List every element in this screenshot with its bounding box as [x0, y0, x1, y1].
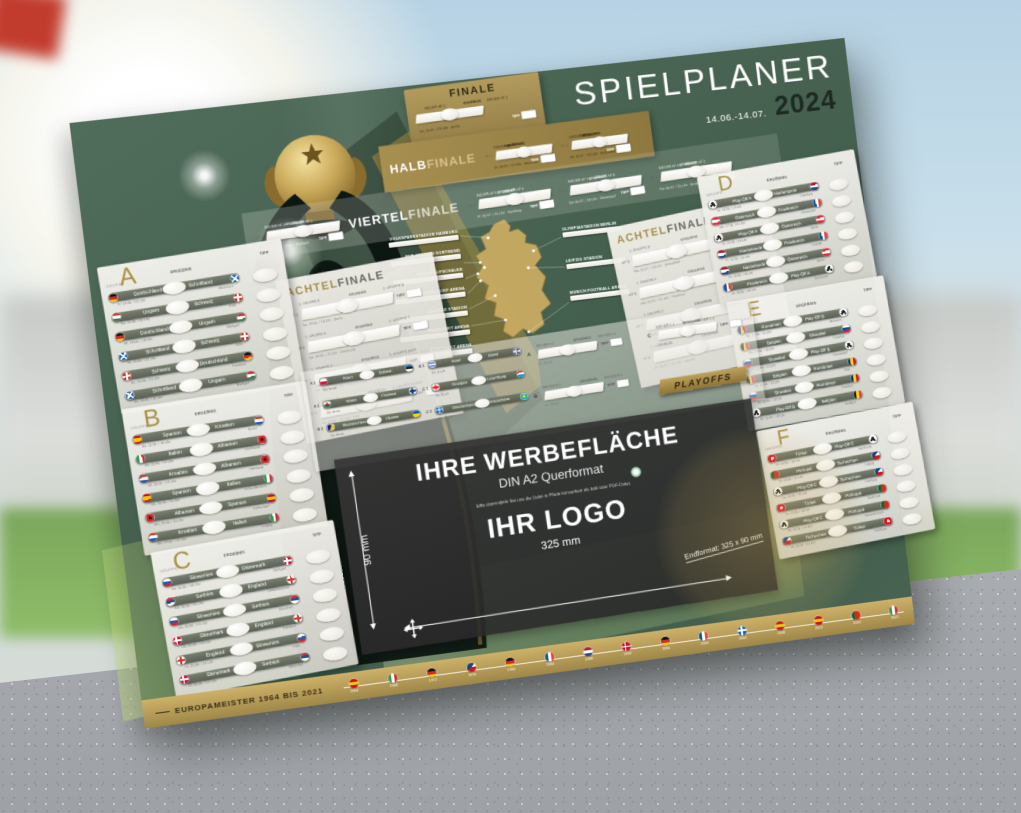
si-flag-icon	[169, 616, 179, 625]
tipp-oval	[322, 645, 348, 662]
tipp-label: TIPP	[396, 293, 405, 298]
tipp-field	[412, 320, 428, 331]
ch-flag-icon	[233, 293, 242, 302]
it-flag-icon	[270, 513, 279, 522]
title-light: FINALE	[426, 151, 477, 171]
tipp-wrap: TIPP	[511, 109, 536, 120]
de-flag-icon	[115, 332, 124, 341]
ch-flag-icon	[240, 332, 249, 341]
tipp-oval	[315, 606, 341, 623]
pt-flag-icon	[851, 610, 861, 620]
fi-flag-icon	[409, 387, 416, 394]
si-flag-icon	[162, 578, 172, 587]
al-flag-icon	[257, 435, 266, 444]
tipp-oval	[259, 306, 285, 323]
match-id: A 2	[313, 404, 319, 409]
champion-year: 2021	[891, 615, 899, 620]
de-flag-icon	[660, 636, 670, 646]
match-info: Di. 09.07. / 21 Uhr · München	[494, 159, 538, 169]
ergebnis-label: ERGEBNIS	[825, 427, 846, 436]
result-oval	[504, 192, 525, 207]
tipp-oval	[866, 353, 887, 367]
tipp-oval	[305, 548, 331, 565]
result-oval	[565, 384, 582, 397]
tipp-label: TIPP	[284, 392, 294, 398]
ge-flag-icon	[432, 383, 439, 390]
width-arrow	[407, 578, 729, 629]
hr-flag-icon	[148, 532, 157, 541]
dk-flag-icon	[283, 555, 292, 564]
group-card-C: GRUPPECERGEBNISTIPPSlowenienDänemarkSo. …	[150, 520, 358, 699]
lu-flag-icon	[517, 370, 524, 377]
tipp-oval	[890, 446, 911, 460]
match-id: HF 2	[560, 143, 569, 148]
nl-flag-icon	[583, 647, 593, 657]
slot-label-away: SIEGER HF 2	[487, 95, 508, 102]
tipp-field	[729, 319, 742, 328]
match-venue: Köln	[229, 303, 237, 308]
en-flag-icon	[286, 575, 295, 584]
champion-entry: 1968	[386, 673, 400, 689]
tipp-field	[616, 379, 629, 388]
rs-flag-icon	[300, 652, 309, 661]
tipp-oval	[283, 448, 309, 465]
si-flag-icon	[297, 633, 306, 642]
match-id: VF 1	[255, 235, 265, 240]
ergebnis-label: ERGEBNIS	[194, 408, 216, 416]
title-gold: ACHTEL	[285, 278, 339, 300]
match-id: C 1	[422, 387, 429, 392]
tournament-year: 2024	[773, 85, 838, 122]
champion-year: 2016	[853, 620, 861, 625]
de-flag-icon	[243, 351, 252, 360]
result-oval	[362, 392, 378, 403]
ergebnis-label: ERGEBNIS	[355, 322, 373, 329]
match-info: Sa. 06.07. / 21 Uhr · Berlin	[659, 181, 699, 191]
match-info: Di. 26.03.	[658, 340, 673, 346]
tipp-field	[540, 153, 556, 163]
is-flag-icon	[514, 347, 521, 354]
knockout-match: VF 3SIEGER AF 7ERGEBNISSIEGER AF 8TIPPSa…	[559, 174, 643, 198]
match-id: VF 4	[650, 175, 659, 180]
playoff-semis-col2: B 1IsraelIslandDo. 21.03.C 1GeorgienLuxe…	[418, 344, 534, 447]
match-venue: Berlin	[817, 257, 825, 262]
champion-year: 2008	[777, 631, 785, 636]
de-flag-icon	[427, 668, 437, 678]
title-bold: HALB	[389, 158, 428, 177]
tipp-label: TIPP	[601, 341, 609, 346]
tipp-oval	[255, 286, 281, 303]
sct-flag-icon	[118, 352, 127, 361]
tipp-field	[615, 143, 631, 153]
stadium-scene: VOLKSPARKSTADION HAMBURGBVB STADION DORT…	[0, 0, 1021, 813]
ua-flag-icon	[413, 410, 420, 417]
group-letter: D	[716, 171, 735, 197]
match-venue: Leipzig	[812, 241, 822, 247]
tipp-wrap: TIPP	[607, 379, 629, 389]
title-bold: VIERTEL	[348, 208, 410, 231]
match-id: C	[647, 333, 657, 340]
tipp-oval	[893, 463, 914, 477]
es-flag-icon	[133, 435, 142, 444]
champion-year: 2012	[815, 625, 823, 630]
dk-flag-icon	[173, 636, 183, 645]
tipp-label: TIPP	[403, 325, 412, 330]
group-letter: A	[117, 262, 138, 293]
champion-entry: 2008	[774, 620, 787, 635]
tipp-label: TIPP	[863, 286, 872, 292]
it-flag-icon	[136, 454, 145, 463]
result-oval	[596, 178, 616, 193]
tipp-label: TIPP	[530, 203, 538, 208]
playoff-final-c-col: CSIEGER C 1ERGEBNISSIEGER C 2TIPPDi. 26.…	[646, 309, 752, 410]
tipp-field	[521, 109, 537, 119]
match-id: AF 5	[621, 259, 631, 265]
champion-year: 1996	[662, 646, 670, 651]
match-id: B 2	[317, 427, 324, 432]
tipp-oval	[843, 260, 864, 274]
es-flag-icon	[142, 493, 151, 502]
match-id: VF 3	[559, 189, 568, 194]
champion-year: 1984	[546, 662, 554, 667]
match-id: A 1	[310, 381, 316, 386]
ba-flag-icon	[327, 424, 335, 432]
match-info: Do. 21.03.	[330, 431, 344, 437]
match-venue: Berlin	[811, 224, 819, 229]
playoff-final: CSIEGER C 1ERGEBNISSIEGER C 2TIPPDi. 26.…	[646, 309, 745, 365]
match-id: B	[533, 393, 543, 400]
tipp-oval	[869, 369, 890, 383]
tipp-oval	[312, 587, 338, 604]
champion-entry: 2004	[736, 626, 749, 641]
knockout-match: CSIEGER C 1ERGEBNISSIEGER C 2TIPPDi. 26.…	[647, 317, 742, 342]
champion-year: 1964	[350, 688, 359, 693]
hr-flag-icon	[254, 415, 263, 424]
tipp-label: TIPP	[892, 413, 901, 419]
match-info: So. 14.07. / 21 Uhr · Berlin	[420, 124, 460, 133]
move-arrows-icon	[402, 617, 425, 640]
tipp-oval	[289, 487, 315, 504]
match-info: Di. 26.03.	[545, 401, 560, 407]
tipp-oval	[279, 429, 305, 446]
rs-flag-icon	[166, 597, 176, 606]
ergebnis-label: ERGEBNIS	[223, 549, 245, 558]
ergebnis-label: ERGEBNIS	[348, 290, 366, 297]
tipp-oval	[828, 177, 849, 191]
sct-flag-icon	[125, 391, 134, 400]
tipp-oval	[860, 320, 881, 334]
endformat-label: Endformat: 325 x 90 mm	[683, 531, 763, 563]
result-oval	[679, 324, 696, 337]
tipp-wrap: TIPP	[720, 319, 742, 329]
en-flag-icon	[176, 655, 186, 664]
champion-year: 2000	[700, 641, 708, 646]
ergebnis-label: ERGEBNIS	[796, 300, 817, 308]
match-info: Do. 21.03.	[323, 385, 337, 391]
title-light: FINALE	[407, 201, 460, 223]
match-id: C 2	[426, 409, 432, 414]
ergebnis-label: ERGEBNIS	[170, 266, 192, 274]
tipp-oval	[840, 243, 861, 257]
es-flag-icon	[813, 616, 823, 626]
knockout-match: HF 1SIEGER VF 1ERGEBNISSIEGER VF 2TIPPDi…	[484, 142, 553, 162]
champion-entry: 1964	[347, 678, 361, 694]
match-venue: Köln	[293, 643, 301, 648]
match-info: Do. 21.03.	[439, 414, 453, 420]
dash-decoration	[155, 710, 169, 713]
match-venue: Köln	[844, 367, 851, 372]
tipp-label: TIPP	[512, 114, 520, 119]
knockout-match: ASIEGER A 2ERGEBNISSIEGER A 1TIPPDi. 26.…	[527, 333, 644, 362]
tipp-wrap: TIPP	[600, 338, 622, 348]
gr-flag-icon	[737, 626, 747, 636]
tipp-oval	[896, 479, 917, 493]
wa-flag-icon	[323, 401, 331, 408]
tipp-oval	[292, 506, 318, 523]
match-id: HF 1	[484, 154, 493, 159]
it-flag-icon	[264, 474, 273, 483]
viertelfinale-title: VIERTELFINALE	[348, 201, 460, 232]
champion-entry: 1976	[465, 662, 479, 678]
slot-label-away: 2. GRUPPE B	[382, 283, 404, 291]
champion-entry: 1980	[504, 657, 518, 672]
tipp-oval	[871, 386, 892, 400]
slot-label-away: 2. GRUPPE C	[389, 315, 411, 323]
slot-label-away: SIEGER B 1	[604, 373, 623, 380]
champion-year: 1976	[468, 672, 476, 677]
tipp-oval	[834, 210, 855, 224]
spielplaner-poster: VOLKSPARKSTADION HAMBURGBVB STADION DORT…	[69, 38, 915, 729]
tipp-field	[630, 185, 646, 195]
match-venue: Leipzig	[865, 461, 875, 467]
tipp-oval	[252, 267, 278, 284]
es-flag-icon	[267, 493, 276, 502]
dk-flag-icon	[180, 675, 190, 684]
match-venue: Berlin	[248, 425, 257, 430]
champion-entry: 1972	[426, 668, 440, 684]
tipp-oval	[286, 467, 312, 484]
match-id: A	[527, 352, 537, 359]
ergebnis-label: ERGEBNIS	[463, 99, 481, 105]
tipp-oval	[262, 325, 288, 342]
hu-flag-icon	[246, 371, 255, 380]
fr-flag-icon	[544, 652, 554, 662]
champion-year: 1980	[507, 667, 515, 672]
match-id: VF 2	[468, 203, 478, 208]
at-flag-icon	[711, 217, 720, 226]
result-oval	[358, 369, 374, 380]
tipp-label: TIPP	[259, 250, 269, 256]
title-dark: FINALE	[337, 269, 386, 290]
tipp-label: TIPP	[834, 160, 843, 166]
result-oval	[470, 375, 486, 386]
stadium-red-flag-blur	[0, 0, 67, 59]
hr-flag-icon	[139, 474, 148, 483]
gr-flag-icon	[435, 406, 442, 413]
result-oval	[466, 352, 482, 363]
tipp-label: TIPP	[621, 189, 629, 194]
group-letter: B	[142, 404, 163, 435]
champion-entry: 2016	[850, 610, 863, 625]
pl-flag-icon	[319, 378, 327, 385]
match-info: Fr. 05.07. / 21 Uhr · Hamburg	[477, 208, 521, 219]
en-flag-icon	[293, 614, 302, 623]
playoffs-banner: PLAYOFFS	[659, 366, 747, 395]
al-flag-icon	[145, 513, 154, 522]
tipp-oval	[887, 430, 908, 444]
champion-entry: 1984	[543, 652, 557, 667]
po-flag-icon	[708, 200, 717, 209]
champion-entry: 2012	[812, 615, 825, 630]
tipp-wrap: TIPP	[396, 288, 422, 300]
match-info: Do. 21.03.	[327, 408, 341, 414]
tipp-oval	[265, 345, 291, 362]
champion-entry: 1992	[620, 641, 633, 656]
tipp-field	[539, 199, 555, 209]
ergebnis-label: ERGEBNIS	[766, 174, 787, 182]
champion-year: 1992	[624, 651, 632, 656]
champion-entry: 2021	[888, 605, 901, 620]
team-pill: IsraelIsland	[427, 347, 522, 369]
ch-flag-icon	[122, 371, 131, 380]
tournament-dates: 14.06.-14.07.	[705, 108, 767, 126]
tipp-oval	[831, 194, 852, 208]
tipp-label: TIPP	[312, 531, 322, 538]
team-pill: PolenEstland	[318, 364, 414, 386]
match-info: Di. 26.03.	[538, 359, 553, 365]
title-gold: ACHTEL	[616, 224, 668, 246]
result-oval	[559, 343, 576, 356]
green-sparkle	[630, 466, 642, 478]
kz-flag-icon	[521, 393, 528, 400]
tipp-label: TIPP	[607, 382, 615, 387]
tipp-oval	[837, 227, 858, 241]
it-flag-icon	[388, 673, 398, 683]
hu-flag-icon	[112, 312, 121, 321]
al-flag-icon	[260, 454, 269, 463]
result-oval	[474, 397, 490, 408]
playoff-finals-col: ASIEGER A 2ERGEBNISSIEGER A 1TIPPDi. 26.…	[525, 325, 654, 430]
tipp-oval	[319, 626, 345, 643]
knockout-match: VF 2SIEGER AF 5ERGEBNISSIEGER AF 6TIPPFr…	[467, 188, 552, 212]
match-venue: Köln	[236, 342, 244, 347]
tipp-oval	[863, 336, 884, 350]
match-info: Mi. 10.07. / 21 Uhr · Dortmund	[570, 149, 615, 159]
champion-year: 1968	[389, 683, 397, 688]
champion-year: 1972	[429, 678, 437, 683]
tipp-oval	[269, 364, 295, 381]
knockout-match: HF 2SIEGER VF 3ERGEBNISSIEGER VF 4TIPPMi…	[560, 132, 628, 152]
tipp-wrap: TIPP	[402, 320, 428, 333]
tipp-oval	[902, 512, 923, 526]
it-flag-icon	[889, 605, 899, 615]
es-flag-icon	[775, 621, 785, 631]
tipp-label: TIPP	[318, 235, 327, 240]
tipp-label: TIPP	[720, 322, 728, 327]
tipp-oval	[308, 568, 334, 585]
es-flag-icon	[348, 678, 358, 688]
sct-flag-icon	[230, 273, 239, 282]
slot-label-away: SIEGER A 1	[598, 332, 617, 339]
tipp-field	[328, 231, 344, 241]
tipp-oval	[857, 303, 878, 317]
champion-year: 1988	[585, 657, 593, 662]
po-flag-icon	[714, 233, 723, 242]
champion-year: 2004	[739, 636, 747, 641]
de-flag-icon	[505, 657, 515, 667]
tipp-oval	[276, 409, 302, 426]
ee-flag-icon	[406, 364, 413, 371]
result-oval	[366, 415, 382, 426]
tipp-field	[405, 288, 421, 299]
halbfinale-title: HALBFINALE	[389, 151, 477, 177]
result-oval	[440, 107, 460, 121]
champion-entry: 2000	[697, 631, 710, 646]
rs-flag-icon	[290, 594, 299, 603]
champion-entry: 1996	[659, 636, 672, 651]
match-id: B 1	[418, 364, 425, 369]
tipp-oval	[899, 495, 920, 509]
tipp-field	[610, 338, 623, 347]
champion-entry: 1988	[582, 646, 595, 661]
dk-flag-icon	[622, 641, 632, 651]
cs-flag-icon	[466, 662, 476, 672]
result-oval	[293, 224, 314, 239]
de-flag-icon	[109, 293, 119, 302]
match-id: AF 6	[629, 291, 639, 297]
match-info: Sa. 06.07. / 18 Uhr · Düsseldorf	[569, 193, 616, 204]
match-info: Do. 21.03.	[435, 391, 449, 397]
hu-flag-icon	[237, 312, 246, 321]
il-flag-icon	[428, 361, 435, 368]
match-info: Do. 21.03.	[431, 368, 445, 374]
fr-flag-icon	[699, 631, 709, 641]
